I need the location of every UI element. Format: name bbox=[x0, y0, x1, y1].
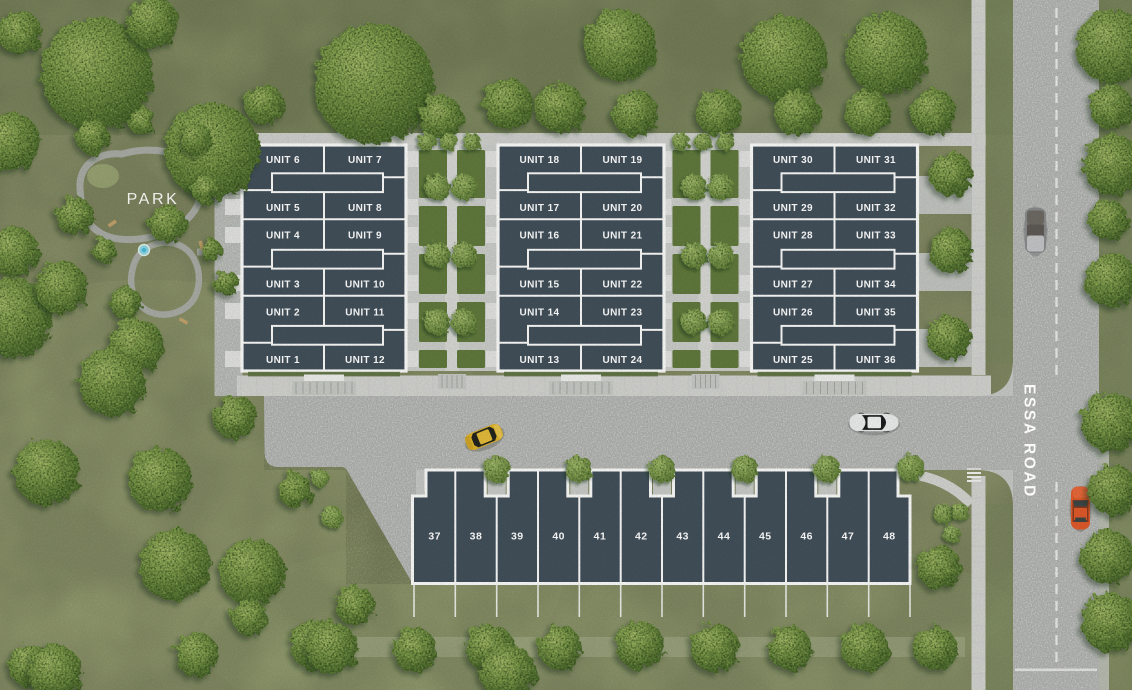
svg-text:ESSA ROAD: ESSA ROAD bbox=[1021, 384, 1038, 499]
